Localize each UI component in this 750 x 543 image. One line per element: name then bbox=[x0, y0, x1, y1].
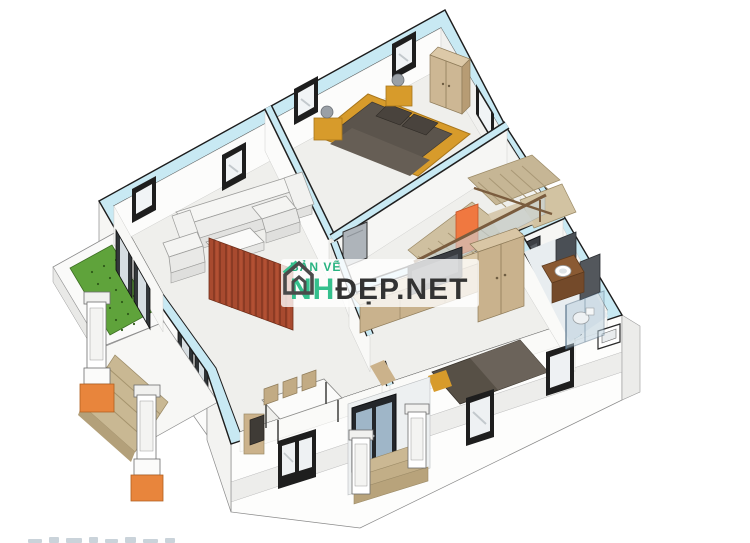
house-logo-icon bbox=[281, 259, 315, 295]
column-base-orange bbox=[80, 384, 114, 412]
watermark-brand-row: NH ĐẸP.NET bbox=[290, 273, 473, 305]
table-lamp bbox=[392, 74, 404, 86]
column-base-orange bbox=[131, 475, 163, 501]
wardrobe bbox=[430, 47, 470, 114]
floor-plan-3d-rendering: BẢN VẼ NH ĐẸP.NET bbox=[0, 0, 750, 543]
watermark: BẢN VẼ NH ĐẸP.NET bbox=[281, 259, 479, 307]
dining-chair bbox=[250, 415, 264, 445]
porch-column bbox=[349, 430, 373, 494]
window bbox=[546, 343, 574, 396]
cutoff-text-artifact bbox=[28, 535, 258, 543]
watermark-brand-dark: ĐẸP.NET bbox=[335, 275, 468, 305]
porch-column bbox=[405, 404, 429, 468]
table-lamp bbox=[321, 106, 333, 118]
window bbox=[466, 389, 494, 446]
